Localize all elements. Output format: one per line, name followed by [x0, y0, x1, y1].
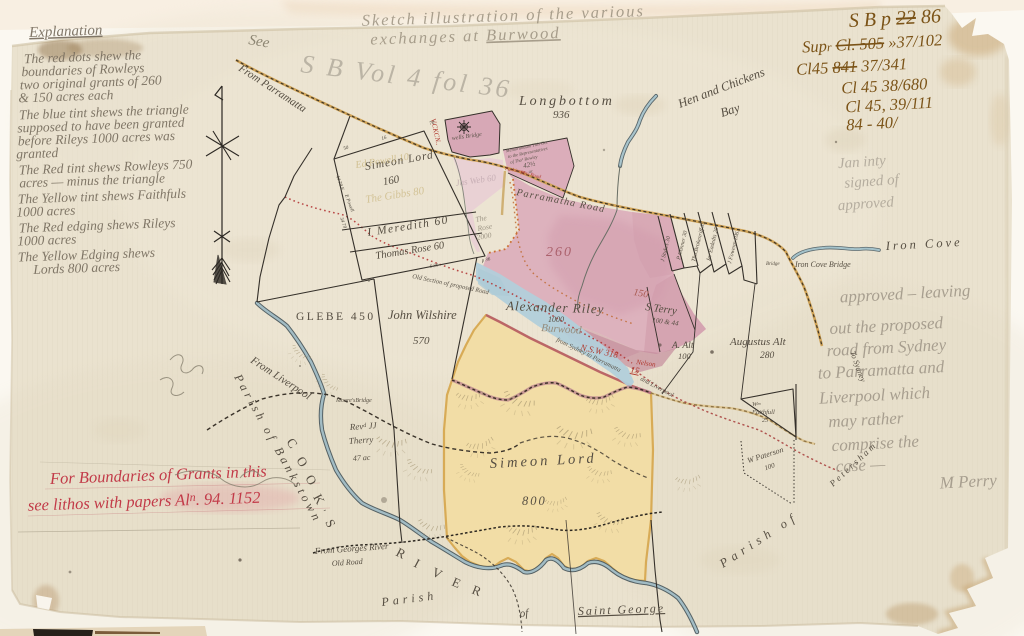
svg-text:Lords 800 acres: Lords 800 acres: [32, 259, 120, 277]
svg-text:Faithfull: Faithfull: [751, 409, 775, 416]
svg-text:John Wilshire: John Wilshire: [388, 308, 457, 322]
svg-text:granted: granted: [16, 145, 59, 161]
svg-text:may rather: may rather: [828, 408, 904, 431]
svg-text:1000 acres: 1000 acres: [16, 203, 76, 220]
svg-text:100: 100: [678, 351, 692, 361]
svg-text:Augustus Alt: Augustus Alt: [729, 336, 787, 348]
svg-text:936: 936: [553, 109, 570, 121]
svg-text:Jan inty: Jan inty: [837, 153, 886, 172]
svg-text:1000 acres: 1000 acres: [17, 231, 77, 248]
svg-text:Iron Cove Bridge: Iron Cove Bridge: [794, 260, 851, 269]
svg-text:A. Alt: A. Alt: [671, 341, 694, 351]
svg-text:570: 570: [413, 335, 430, 347]
svg-text:280: 280: [760, 351, 775, 361]
svg-text:Longbottom: Longbottom: [518, 94, 615, 109]
svg-text:Moore'sBridge: Moore'sBridge: [335, 398, 372, 404]
svg-text:M Perry: M Perry: [938, 471, 997, 493]
svg-text:25: 25: [762, 418, 768, 424]
svg-text:Explanation: Explanation: [28, 22, 103, 41]
svg-text:47 ac: 47 ac: [353, 453, 372, 463]
svg-text:260: 260: [546, 245, 573, 260]
svg-text:GLEBE 450: GLEBE 450: [296, 311, 376, 323]
svg-text:800: 800: [522, 494, 547, 508]
svg-text:84 - 40/: 84 - 40/: [846, 113, 900, 135]
svg-text:Therry: Therry: [348, 434, 373, 446]
svg-text:Bridge: Bridge: [766, 262, 780, 267]
